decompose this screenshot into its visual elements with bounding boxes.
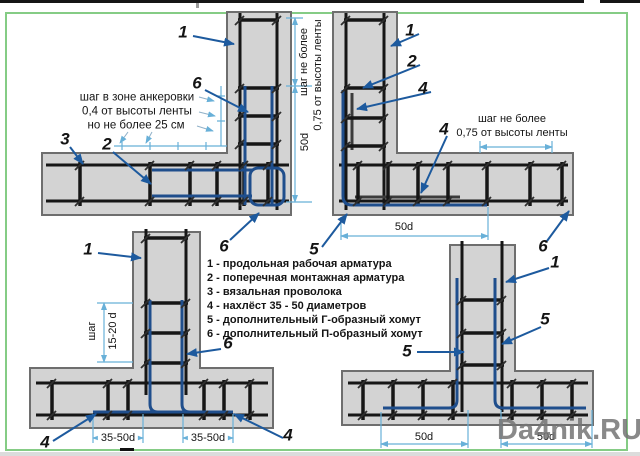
callout-4: 4 [283, 427, 292, 446]
callout-3: 3 [60, 131, 69, 150]
callout-4: 4 [418, 80, 427, 99]
leader-lines [199, 97, 214, 101]
dim-band-height-label: 0,75 от высоты ленты [456, 127, 567, 139]
rebar-scheme-diagram: 1 6 3 2 шаг в зоне анкеровки 0,4 от высо… [0, 0, 640, 456]
callout-2: 2 [407, 53, 416, 72]
dim-35-50d-label: 35-50d [98, 432, 138, 444]
anchorage-note-line3: но не более 25 см [88, 120, 185, 133]
leader-lines [146, 132, 152, 143]
anchorage-note-line2: 0,4 от высоты ленты [82, 106, 192, 119]
callout-1: 1 [550, 254, 559, 273]
leader-lines [197, 126, 213, 131]
dim-35-50d-label: 35-50d [188, 432, 228, 444]
legend-item: 6 - дополнительный П-образный хомут [207, 327, 423, 341]
callout-5: 5 [540, 311, 549, 330]
leader-lines [120, 132, 128, 143]
dim-step-label: шаг [86, 322, 98, 341]
callout-1: 1 [83, 241, 92, 260]
anchorage-note-line1: шаг в зоне анкеровки [80, 92, 194, 105]
legend-item: 3 - вязальная проволока [207, 285, 423, 299]
dim-50d-label: 50d [299, 133, 311, 151]
callout-1: 1 [405, 22, 414, 41]
callout-6: 6 [538, 238, 547, 257]
legend-item: 1 - продольная рабочая арматура [207, 257, 423, 271]
legend-item: 4 - нахлёст 35 - 50 диаметров [207, 299, 423, 313]
dim-step-max-label: шаг не более [298, 28, 310, 96]
watermark: Da4nik.RU [497, 414, 640, 447]
legend-item: 5 - дополнительный Г-образный хомут [207, 313, 423, 327]
callout-2: 2 [102, 136, 111, 155]
dim-50d-label: 50d [395, 221, 413, 233]
anchorage-tick-column [217, 86, 225, 146]
callout-1: 1 [178, 24, 187, 43]
callout-6: 6 [192, 75, 201, 94]
anchorage-dim-line [114, 142, 227, 150]
dim-15-20d-label: 15-20 d [107, 312, 119, 349]
leader-lines [199, 112, 215, 116]
callout-5: 5 [402, 343, 411, 362]
legend: 1 - продольная рабочая арматура 2 - попе… [207, 257, 423, 341]
callout-4: 4 [40, 434, 49, 453]
legend-item: 2 - поперечная монтажная арматура [207, 271, 423, 285]
callout-6: 6 [219, 238, 228, 257]
dim-band-height-label: 0,75 от высоты ленты [312, 19, 324, 130]
bottom-dash [120, 448, 134, 451]
dim-step-max-label: шаг не более [478, 113, 546, 125]
callout-4: 4 [439, 121, 448, 140]
callout-arrow [322, 214, 347, 247]
callout-arrow [230, 213, 259, 240]
dim-50d-label: 50d [412, 431, 436, 443]
